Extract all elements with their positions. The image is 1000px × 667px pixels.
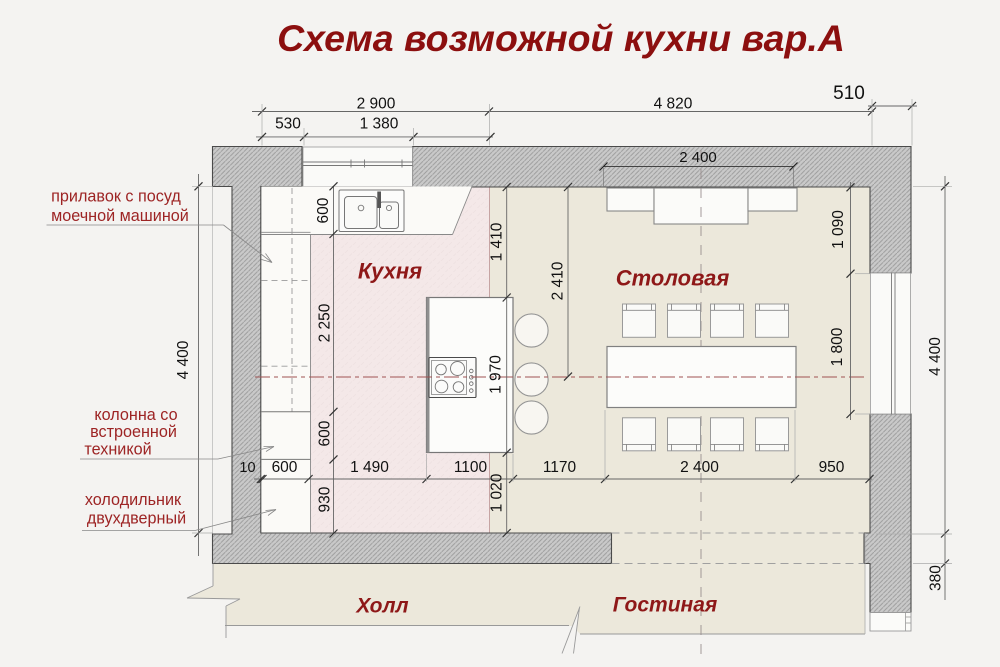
svg-text:прилавок с посуд: прилавок с посуд bbox=[51, 188, 181, 206]
svg-text:10: 10 bbox=[239, 460, 255, 476]
svg-text:600: 600 bbox=[272, 459, 298, 476]
svg-text:1 970: 1 970 bbox=[488, 355, 505, 394]
svg-text:950: 950 bbox=[819, 459, 845, 476]
svg-text:1 090: 1 090 bbox=[830, 210, 847, 249]
svg-text:4 820: 4 820 bbox=[654, 96, 693, 113]
svg-text:510: 510 bbox=[833, 83, 865, 104]
svg-text:530: 530 bbox=[275, 116, 301, 133]
svg-text:Гостиная: Гостиная bbox=[613, 594, 718, 617]
svg-text:Холл: Холл bbox=[355, 595, 408, 618]
svg-text:2 900: 2 900 bbox=[357, 96, 396, 113]
svg-text:2 400: 2 400 bbox=[679, 149, 717, 166]
svg-text:930: 930 bbox=[317, 486, 334, 512]
svg-text:1170: 1170 bbox=[543, 459, 577, 476]
svg-text:техникой: техникой bbox=[84, 441, 151, 459]
svg-text:встроенной: встроенной bbox=[90, 423, 177, 441]
svg-text:4 400: 4 400 bbox=[175, 340, 192, 379]
svg-text:1 380: 1 380 bbox=[360, 116, 399, 133]
svg-text:двухдверный: двухдверный bbox=[87, 510, 186, 528]
svg-text:моечной машиной: моечной машиной bbox=[51, 207, 189, 225]
svg-text:1 020: 1 020 bbox=[489, 473, 506, 512]
svg-text:1100: 1100 bbox=[454, 459, 488, 476]
svg-text:Схема возможной кухни вар.А: Схема возможной кухни вар.А bbox=[277, 17, 845, 59]
svg-text:1 490: 1 490 bbox=[350, 459, 389, 476]
svg-text:2 400: 2 400 bbox=[680, 459, 719, 476]
svg-text:2 250: 2 250 bbox=[317, 303, 334, 342]
svg-text:1 410: 1 410 bbox=[489, 222, 506, 261]
svg-text:1 800: 1 800 bbox=[829, 327, 846, 366]
svg-text:Столовая: Столовая bbox=[616, 266, 730, 291]
svg-text:600: 600 bbox=[315, 197, 332, 223]
svg-text:2 410: 2 410 bbox=[550, 261, 567, 300]
svg-text:380: 380 bbox=[928, 565, 945, 591]
svg-text:холодильник: холодильник bbox=[85, 491, 182, 509]
svg-text:4 400: 4 400 bbox=[927, 337, 944, 376]
svg-text:колонна со: колонна со bbox=[94, 406, 177, 424]
svg-text:Кухня: Кухня bbox=[358, 259, 422, 284]
svg-text:600: 600 bbox=[317, 420, 334, 446]
